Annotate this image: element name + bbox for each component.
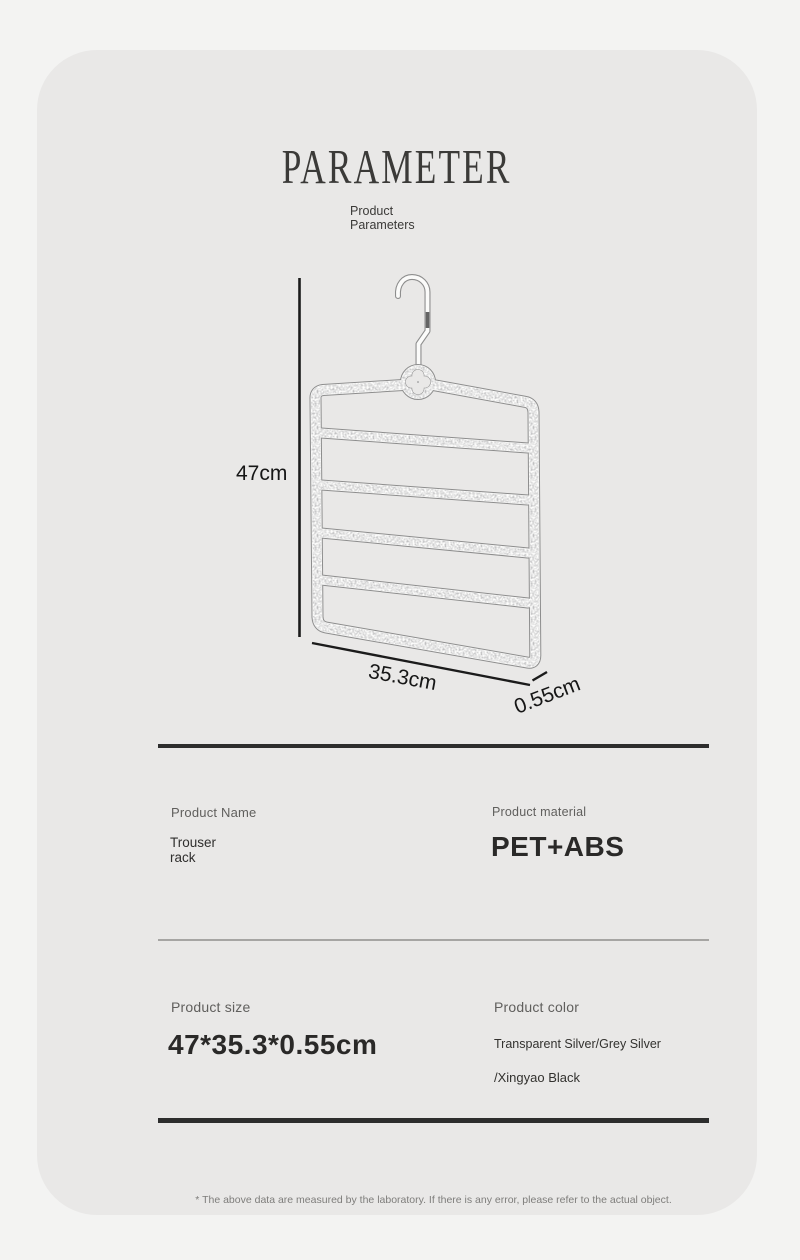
page-title-text: PARAMETER xyxy=(282,142,512,191)
product-material-label: Product material xyxy=(492,805,586,819)
disclaimer-note: * The above data are measured by the lab… xyxy=(158,1194,709,1206)
hanger-frame xyxy=(315,370,535,663)
product-color-value-line1: Transparent Silver/Grey Silver xyxy=(494,1037,661,1051)
page-title: PARAMETER xyxy=(37,142,757,191)
page-subtitle-line2: Parameters xyxy=(350,218,550,232)
product-name-value: Trouser rack xyxy=(170,836,216,865)
page-subtitle-line1: Product xyxy=(350,204,550,218)
divider-middle xyxy=(158,939,709,941)
hanger-hook xyxy=(398,277,428,366)
product-size-label: Product size xyxy=(171,999,250,1015)
divider-bottom xyxy=(158,1118,709,1123)
product-color-value-line2: /Xingyao Black xyxy=(494,1070,580,1085)
trouser-rack-hanger-image xyxy=(287,265,557,695)
height-dimension-label: 47cm xyxy=(236,462,287,486)
page-subtitle: Product Parameters xyxy=(350,204,550,232)
divider-top xyxy=(158,744,709,748)
product-size-value: 47*35.3*0.55cm xyxy=(168,1029,377,1061)
page-background: PARAMETER Product Parameters xyxy=(0,0,800,1260)
product-name-value-line1: Trouser xyxy=(170,836,216,851)
parameter-card: PARAMETER Product Parameters xyxy=(37,50,757,1215)
product-name-value-line2: rack xyxy=(170,851,216,866)
product-name-label: Product Name xyxy=(171,805,257,820)
product-color-label: Product color xyxy=(494,999,579,1015)
product-material-value: PET+ABS xyxy=(491,831,624,863)
